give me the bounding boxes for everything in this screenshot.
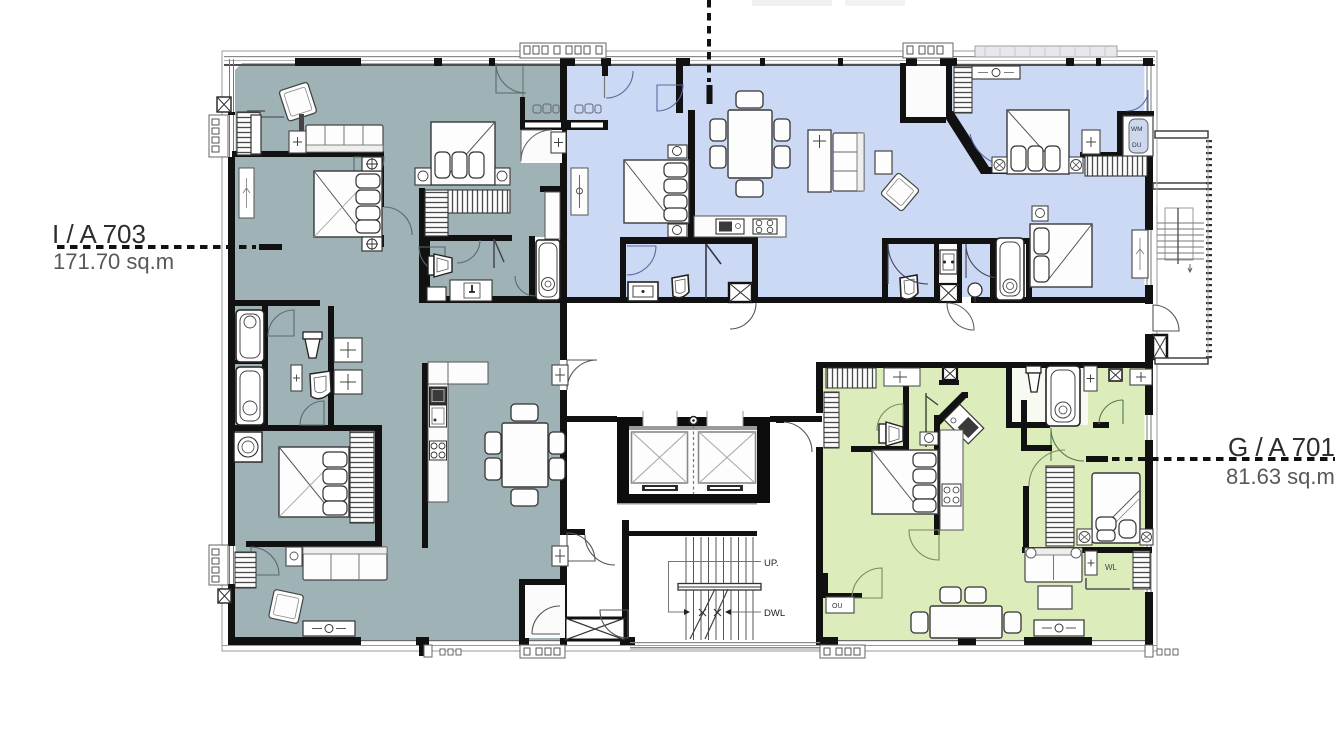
svg-text:DWL: DWL (764, 608, 785, 619)
svg-text:WM: WM (1131, 126, 1143, 133)
svg-text:81.63 sq.m: 81.63 sq.m (1226, 464, 1335, 489)
svg-text:DU: DU (1132, 142, 1142, 149)
svg-text:OU: OU (832, 603, 843, 610)
svg-text:I / A 703: I / A 703 (52, 219, 146, 249)
svg-text:171.70 sq.m: 171.70 sq.m (53, 249, 174, 274)
svg-text:UP.: UP. (764, 558, 779, 569)
svg-text:WL: WL (1105, 563, 1118, 572)
